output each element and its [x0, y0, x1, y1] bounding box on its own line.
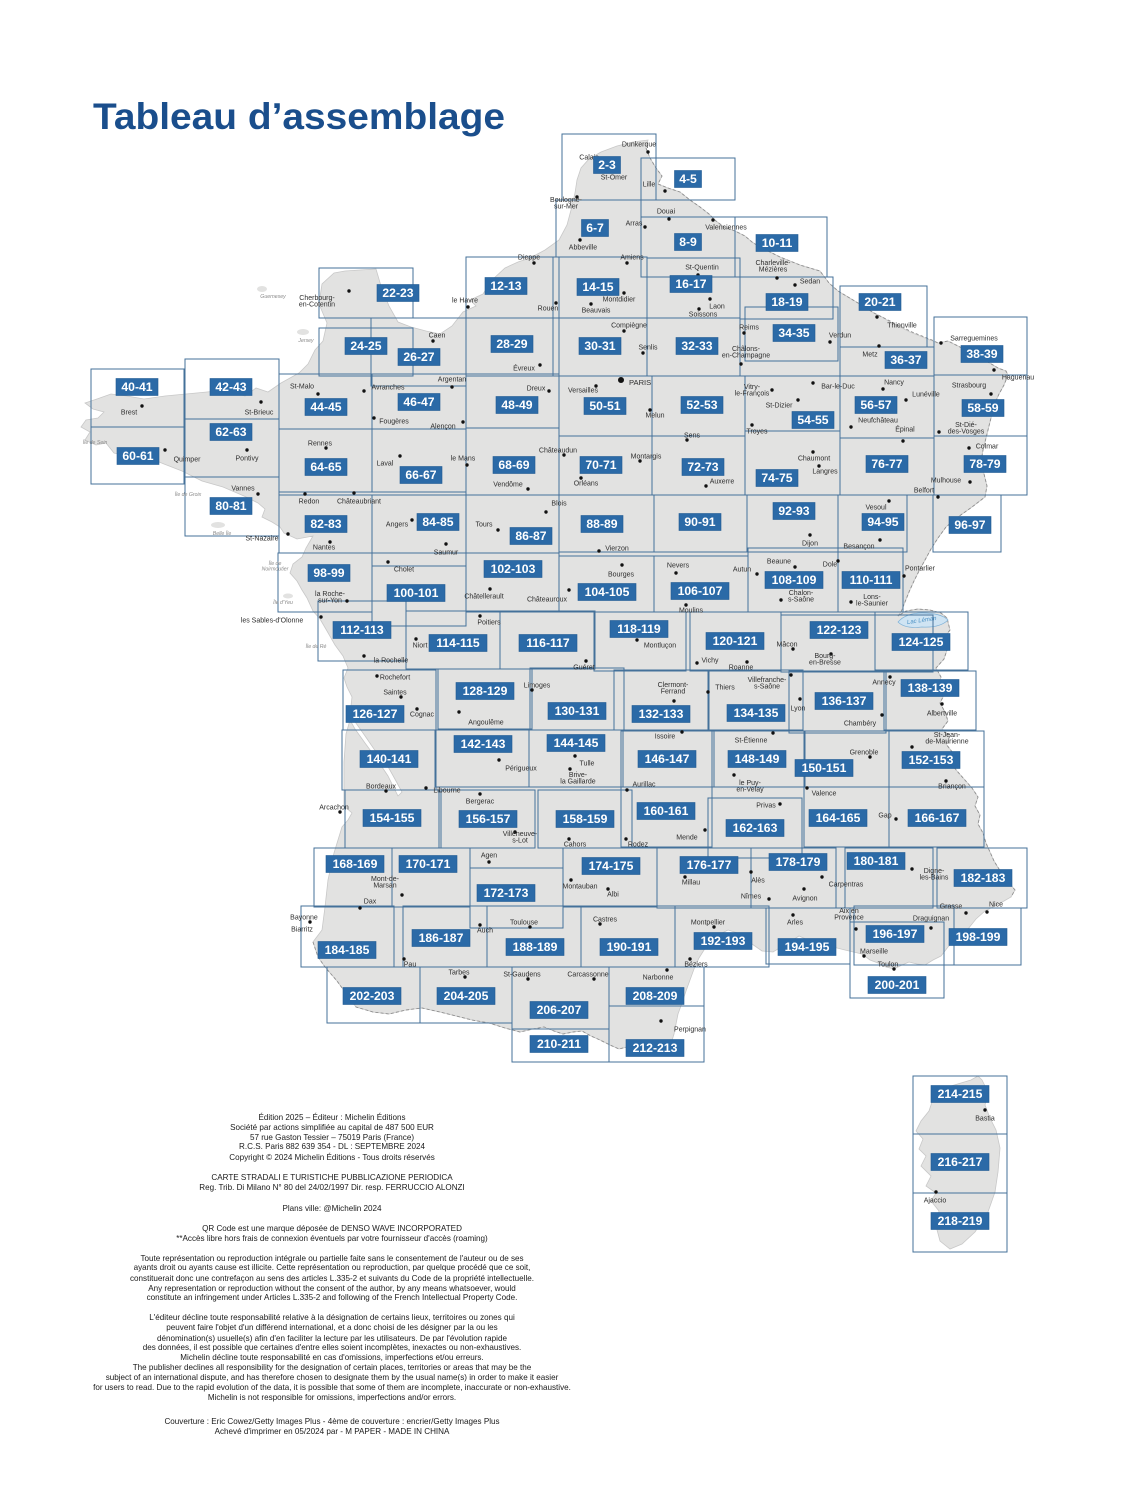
svg-text:Besançon: Besançon [843, 543, 874, 550]
svg-text:Cahors: Cahors [564, 841, 587, 848]
svg-text:Chaumont: Chaumont [798, 455, 830, 462]
svg-text:Niort: Niort [413, 642, 428, 649]
svg-text:130-131: 130-131 [555, 704, 600, 718]
svg-text:52-53: 52-53 [686, 398, 717, 412]
svg-text:Laon: Laon [709, 303, 725, 310]
svg-text:Cognac: Cognac [410, 711, 435, 718]
svg-text:Dieppe: Dieppe [518, 254, 540, 261]
svg-text:Langres: Langres [812, 468, 838, 475]
svg-text:Soissons: Soissons [689, 311, 718, 318]
svg-text:40-41: 40-41 [121, 380, 152, 394]
svg-text:Lyon: Lyon [791, 705, 806, 712]
svg-text:Île d'Yeu: Île d'Yeu [273, 599, 293, 606]
svg-text:158-159: 158-159 [563, 812, 608, 826]
svg-text:Laval: Laval [377, 460, 394, 467]
svg-text:Grasse: Grasse [940, 903, 963, 910]
svg-text:peuvent faire l'objet d'un dif: peuvent faire l'objet d'un différend int… [166, 1323, 497, 1332]
svg-text:88-89: 88-89 [586, 517, 617, 531]
svg-text:Valence: Valence [812, 790, 837, 797]
svg-text:Fougères: Fougères [379, 418, 409, 425]
svg-text:Auch: Auch [477, 927, 493, 934]
svg-text:18-19: 18-19 [771, 295, 802, 309]
svg-text:Montluçon: Montluçon [644, 642, 676, 649]
svg-text:Angers: Angers [386, 521, 409, 528]
svg-text:le Havre: le Havre [452, 297, 478, 304]
svg-text:Thionville: Thionville [887, 322, 917, 329]
svg-text:14-15: 14-15 [582, 280, 613, 294]
svg-text:en-Bresse: en-Bresse [809, 660, 841, 667]
svg-text:34-35: 34-35 [778, 326, 809, 340]
svg-text:172-173: 172-173 [484, 886, 529, 900]
svg-text:Caen: Caen [429, 332, 446, 339]
svg-text:Alès: Alès [751, 877, 765, 884]
svg-text:s-Saône: s-Saône [788, 597, 814, 604]
svg-text:Vendôme: Vendôme [493, 481, 523, 488]
svg-text:Tulle: Tulle [580, 760, 595, 767]
svg-text:Autun: Autun [733, 566, 751, 573]
svg-text:Pau: Pau [404, 961, 417, 968]
svg-text:de-Maurienne: de-Maurienne [925, 739, 968, 746]
svg-text:Bastia: Bastia [975, 1115, 995, 1122]
svg-text:214-215: 214-215 [938, 1087, 983, 1101]
svg-text:Privas: Privas [756, 802, 776, 809]
svg-text:Millau: Millau [682, 879, 700, 886]
svg-text:192-193: 192-193 [701, 934, 746, 948]
svg-text:Vichy: Vichy [702, 657, 719, 664]
svg-text:Dunkerque: Dunkerque [622, 141, 656, 148]
svg-text:96-97: 96-97 [954, 518, 985, 532]
svg-text:Tarbes: Tarbes [448, 969, 470, 976]
svg-text:Dax: Dax [364, 898, 377, 905]
svg-text:St-Étienne: St-Étienne [735, 735, 768, 744]
svg-text:Marsan: Marsan [373, 883, 396, 890]
svg-text:St-Nazaire: St-Nazaire [245, 535, 278, 542]
svg-text:124-125: 124-125 [899, 635, 944, 649]
svg-text:Valenciennes: Valenciennes [705, 224, 747, 231]
svg-text:Troyes: Troyes [746, 428, 768, 435]
svg-text:Aurillac: Aurillac [633, 781, 656, 788]
svg-text:136-137: 136-137 [822, 694, 867, 708]
svg-text:150-151: 150-151 [802, 761, 847, 775]
svg-text:70-71: 70-71 [585, 458, 616, 472]
svg-text:Bergerac: Bergerac [466, 798, 495, 805]
svg-text:Albertville: Albertville [927, 710, 957, 717]
svg-text:196-197: 196-197 [873, 927, 918, 941]
svg-text:Agen: Agen [481, 852, 497, 859]
svg-text:dénomination(s) usuelle(s) afi: dénomination(s) usuelle(s) afin d'en fac… [157, 1334, 507, 1343]
svg-text:184-185: 184-185 [325, 943, 370, 957]
svg-text:Argentan: Argentan [438, 376, 467, 383]
svg-text:152-153: 152-153 [909, 753, 954, 767]
svg-text:Dreux: Dreux [527, 385, 546, 392]
svg-text:178-179: 178-179 [776, 855, 821, 869]
svg-text:St-Omer: St-Omer [601, 174, 628, 181]
svg-text:Rodez: Rodez [628, 841, 649, 848]
svg-text:Bordeaux: Bordeaux [366, 783, 396, 790]
svg-text:Sedan: Sedan [800, 278, 820, 285]
svg-text:2-3: 2-3 [598, 158, 616, 172]
svg-text:54-55: 54-55 [797, 413, 828, 427]
svg-text:for users to read. Due to the: for users to read. Due to the rapid evol… [93, 1383, 571, 1392]
svg-text:Société par actions simplifiée: Société par actions simplifiée au capita… [230, 1123, 434, 1132]
svg-text:Angoulême: Angoulême [468, 719, 504, 726]
svg-text:84-85: 84-85 [422, 515, 453, 529]
svg-text:St-Gaudens: St-Gaudens [503, 971, 541, 978]
svg-text:32-33: 32-33 [681, 339, 712, 353]
svg-text:Any representation or reproduc: Any representation or reproduction witho… [148, 1284, 516, 1293]
svg-text:en-Velay: en-Velay [736, 787, 764, 794]
svg-text:Montpellier: Montpellier [691, 919, 726, 926]
svg-text:166-167: 166-167 [915, 811, 960, 825]
svg-text:Narbonne: Narbonne [643, 974, 674, 981]
svg-text:110-111: 110-111 [850, 573, 893, 587]
svg-text:Michelin is not responsible fo: Michelin is not responsible for omission… [208, 1393, 456, 1402]
svg-text:Thiers: Thiers [715, 684, 735, 691]
svg-text:CARTE STRADALI E TURISTICHE PU: CARTE STRADALI E TURISTICHE PUBBLICAZION… [211, 1173, 453, 1182]
svg-text:Perpignan: Perpignan [674, 1026, 706, 1033]
svg-text:200-201: 200-201 [875, 978, 920, 992]
svg-text:Mende: Mende [676, 834, 698, 841]
svg-text:St-Quentin: St-Quentin [685, 264, 719, 271]
svg-text:26-27: 26-27 [403, 350, 434, 364]
svg-text:Grenoble: Grenoble [850, 749, 879, 756]
svg-text:Arras: Arras [626, 220, 643, 227]
svg-text:Épinal: Épinal [895, 424, 915, 433]
svg-text:Issoire: Issoire [655, 733, 676, 740]
svg-text:R.C.S. Paris 882 639 354 - DL: R.C.S. Paris 882 639 354 - DL : SEPTEMBR… [239, 1142, 425, 1151]
svg-text:Arcachon: Arcachon [319, 804, 349, 811]
svg-text:Metz: Metz [862, 351, 878, 358]
svg-text:16-17: 16-17 [675, 277, 706, 291]
svg-text:Dijon: Dijon [802, 540, 818, 547]
svg-text:Amiens: Amiens [620, 254, 644, 261]
svg-text:202-203: 202-203 [350, 989, 395, 1003]
svg-text:168-169: 168-169 [333, 857, 378, 871]
svg-text:48-49: 48-49 [501, 398, 532, 412]
svg-text:56-57: 56-57 [860, 398, 891, 412]
svg-text:94-95: 94-95 [867, 515, 898, 529]
svg-text:60-61: 60-61 [122, 449, 153, 463]
svg-text:Senlis: Senlis [638, 344, 658, 351]
svg-text:20-21: 20-21 [864, 295, 895, 309]
svg-text:Montdidier: Montdidier [603, 296, 636, 303]
svg-text:Vierzon: Vierzon [605, 545, 629, 552]
svg-text:en-Champagne: en-Champagne [722, 353, 770, 360]
svg-text:74-75: 74-75 [761, 471, 792, 485]
svg-text:Tours: Tours [475, 521, 493, 528]
svg-text:Mézières: Mézières [759, 267, 788, 274]
svg-text:57 rue Gaston Tessier – 75019: 57 rue Gaston Tessier – 75019 Paris (Fra… [250, 1133, 414, 1142]
svg-text:subject of an international di: subject of an international dispute, and… [106, 1373, 559, 1382]
svg-text:182-183: 182-183 [961, 871, 1006, 885]
svg-text:188-189: 188-189 [513, 940, 558, 954]
svg-text:Michelin décline toute respons: Michelin décline toute responsabilité en… [180, 1353, 483, 1362]
svg-text:162-163: 162-163 [733, 821, 778, 835]
svg-text:170-171: 170-171 [406, 857, 451, 871]
svg-text:194-195: 194-195 [785, 940, 830, 954]
svg-text:Toute représentation ou reprod: Toute représentation ou reproduction int… [140, 1254, 523, 1263]
svg-text:ayants droit ou ayants cause e: ayants droit ou ayants cause est illicit… [134, 1263, 531, 1272]
svg-text:126-127: 126-127 [353, 707, 398, 721]
svg-text:Reims: Reims [739, 324, 759, 331]
svg-text:108-109: 108-109 [772, 573, 817, 587]
svg-text:30-31: 30-31 [584, 339, 615, 353]
svg-text:L'éditeur décline toute respon: L'éditeur décline toute responsabilité r… [149, 1313, 515, 1322]
svg-text:118-119: 118-119 [617, 622, 661, 636]
svg-text:St-Brieuc: St-Brieuc [245, 409, 274, 416]
svg-text:Guernesey: Guernesey [260, 294, 286, 300]
svg-text:82-83: 82-83 [310, 517, 341, 531]
svg-text:sur-Mer: sur-Mer [554, 204, 579, 211]
svg-text:154-155: 154-155 [370, 811, 415, 825]
svg-text:216-217: 216-217 [938, 1155, 983, 1169]
svg-text:Versailles: Versailles [568, 387, 598, 394]
svg-text:Lunéville: Lunéville [912, 391, 940, 398]
svg-text:en-Cotentin: en-Cotentin [299, 302, 335, 309]
svg-text:140-141: 140-141 [367, 752, 412, 766]
svg-text:Provence: Provence [834, 915, 864, 922]
svg-text:Douai: Douai [657, 208, 676, 215]
svg-text:Toulon: Toulon [878, 961, 899, 968]
svg-text:Pontarlier: Pontarlier [905, 565, 936, 572]
svg-text:Gap: Gap [878, 812, 891, 819]
svg-text:180-181: 180-181 [854, 854, 899, 868]
svg-text:64-65: 64-65 [310, 460, 341, 474]
svg-text:Brest: Brest [121, 409, 137, 416]
svg-text:186-187: 186-187 [419, 931, 464, 945]
svg-text:Île de Groix: Île de Groix [175, 491, 202, 498]
svg-text:St-Malo: St-Malo [290, 383, 314, 390]
svg-text:constitute an infringement und: constitute an infringement under Article… [147, 1293, 518, 1302]
svg-text:86-87: 86-87 [515, 529, 546, 543]
svg-text:120-121: 120-121 [713, 634, 758, 648]
svg-text:122-123: 122-123 [817, 623, 862, 637]
svg-text:204-205: 204-205 [444, 989, 489, 1003]
svg-text:Ferrand: Ferrand [661, 689, 686, 696]
svg-text:38-39: 38-39 [966, 347, 997, 361]
svg-text:Melun: Melun [645, 412, 664, 419]
svg-text:Albi: Albi [607, 891, 619, 898]
svg-text:Sarreguemines: Sarreguemines [950, 335, 998, 342]
svg-text:The publisher declines all res: The publisher declines all responsibilit… [133, 1363, 532, 1372]
svg-text:Guéret: Guéret [573, 664, 594, 671]
svg-text:176-177: 176-177 [687, 858, 732, 872]
svg-text:46-47: 46-47 [403, 395, 434, 409]
svg-text:Saintes: Saintes [383, 689, 407, 696]
svg-text:Périgueux: Périgueux [505, 765, 537, 772]
svg-text:QR Code est une marque déposée: QR Code est une marque déposée de DENSO … [202, 1224, 462, 1233]
svg-text:Bar-le-Duc: Bar-le-Duc [821, 383, 855, 390]
svg-text:104-105: 104-105 [585, 585, 630, 599]
svg-text:42-43: 42-43 [215, 380, 246, 394]
svg-text:Redon: Redon [299, 498, 320, 505]
svg-text:Rouen: Rouen [538, 305, 559, 312]
svg-text:66-67: 66-67 [405, 468, 436, 482]
svg-text:Libourne: Libourne [433, 787, 460, 794]
svg-text:138-139: 138-139 [908, 681, 953, 695]
svg-text:68-69: 68-69 [498, 458, 529, 472]
svg-text:le-François: le-François [735, 391, 770, 398]
svg-text:Lille: Lille [643, 181, 656, 188]
svg-text:Couverture : Eric Cowez/Getty: Couverture : Eric Cowez/Getty Images Plu… [164, 1417, 499, 1426]
svg-text:72-73: 72-73 [687, 460, 718, 474]
svg-text:Sens: Sens [684, 432, 700, 439]
svg-text:les-Bains: les-Bains [920, 875, 949, 882]
svg-text:Rochefort: Rochefort [380, 674, 410, 681]
svg-text:Saumur: Saumur [434, 549, 459, 556]
svg-text:Castres: Castres [593, 916, 618, 923]
svg-text:des données, il est possible q: des données, il est possible que certain… [143, 1343, 522, 1352]
svg-text:44-45: 44-45 [310, 400, 341, 414]
svg-text:116-117: 116-117 [526, 636, 570, 650]
svg-text:206-207: 206-207 [537, 1003, 582, 1017]
svg-text:Carpentras: Carpentras [829, 881, 864, 888]
svg-text:Reg. Trib. Di Milano N° 80 del: Reg. Trib. Di Milano N° 80 del 24/02/199… [199, 1183, 464, 1192]
svg-text:Copyright © 2024 Michelin Édit: Copyright © 2024 Michelin Éditions - Tou… [229, 1153, 435, 1162]
svg-text:**Accès libre hors frais de co: **Accès libre hors frais de connexion év… [176, 1234, 488, 1243]
svg-text:Pontivy: Pontivy [236, 455, 259, 462]
svg-text:Nevers: Nevers [667, 562, 690, 569]
svg-text:98-99: 98-99 [313, 566, 344, 580]
svg-text:100-101: 100-101 [394, 586, 439, 600]
svg-text:28-29: 28-29 [496, 337, 527, 351]
svg-text:164-165: 164-165 [816, 811, 861, 825]
svg-text:Quimper: Quimper [174, 456, 202, 463]
svg-text:Toulouse: Toulouse [510, 919, 538, 926]
svg-text:Abbeville: Abbeville [569, 244, 598, 251]
svg-text:Châtellerault: Châtellerault [464, 593, 503, 600]
svg-text:76-77: 76-77 [871, 457, 902, 471]
svg-text:Chambéry: Chambéry [844, 720, 877, 727]
svg-text:58-59: 58-59 [967, 401, 998, 415]
svg-text:198-199: 198-199 [956, 930, 1001, 944]
svg-text:Vesoul: Vesoul [865, 504, 886, 511]
svg-text:Arles: Arles [787, 919, 803, 926]
svg-text:156-157: 156-157 [466, 812, 511, 826]
svg-text:210-211: 210-211 [537, 1037, 581, 1051]
svg-text:134-135: 134-135 [734, 706, 779, 720]
svg-text:174-175: 174-175 [589, 859, 634, 873]
svg-text:160-161: 160-161 [644, 804, 689, 818]
svg-text:Montauban: Montauban [562, 883, 597, 890]
svg-text:Nice: Nice [989, 901, 1003, 908]
svg-text:Noirmoutier: Noirmoutier [262, 566, 289, 572]
svg-text:36-37: 36-37 [890, 353, 921, 367]
svg-text:190-191: 190-191 [607, 940, 652, 954]
svg-text:102-103: 102-103 [491, 562, 536, 576]
svg-text:218-219: 218-219 [938, 1214, 983, 1228]
svg-text:sur-Yon: sur-Yon [318, 598, 342, 605]
svg-text:Vannes: Vannes [231, 485, 255, 492]
svg-text:144-145: 144-145 [554, 736, 599, 750]
svg-text:Île de Ré: Île de Ré [306, 643, 327, 650]
svg-text:92-93: 92-93 [778, 504, 809, 518]
svg-text:90-91: 90-91 [684, 515, 715, 529]
svg-text:Carcassonne: Carcassonne [567, 971, 608, 978]
svg-text:la Rochelle: la Rochelle [374, 657, 409, 664]
svg-text:Dole: Dole [823, 561, 838, 568]
svg-text:PARIS: PARIS [629, 378, 651, 387]
svg-text:128-129: 128-129 [463, 684, 508, 698]
svg-text:24-25: 24-25 [350, 339, 381, 353]
svg-text:148-149: 148-149 [735, 752, 780, 766]
svg-text:Rennes: Rennes [308, 440, 333, 447]
svg-text:Île de Sein: Île de Sein [83, 439, 108, 446]
svg-text:208-209: 208-209 [633, 989, 678, 1003]
svg-text:Ajaccio: Ajaccio [924, 1197, 947, 1204]
svg-text:Marseille: Marseille [860, 948, 888, 955]
svg-text:Montargis: Montargis [631, 453, 662, 460]
svg-text:6-7: 6-7 [586, 221, 604, 235]
svg-text:le-Saunier: le-Saunier [856, 601, 889, 608]
svg-text:Belle Île: Belle Île [213, 530, 232, 537]
svg-text:Colmar: Colmar [976, 443, 999, 450]
svg-text:Poitiers: Poitiers [477, 619, 501, 626]
svg-text:Belfort: Belfort [914, 487, 934, 494]
svg-text:Neufchâteau: Neufchâteau [858, 417, 898, 424]
svg-text:Châteaudun: Châteaudun [539, 447, 577, 454]
svg-text:Auxerre: Auxerre [710, 478, 735, 485]
svg-text:constituerait donc une contref: constituerait donc une contrefaçon au se… [130, 1274, 534, 1283]
svg-text:Alençon: Alençon [430, 423, 455, 430]
svg-text:Évreux: Évreux [513, 363, 535, 372]
svg-text:Annecy: Annecy [872, 679, 896, 686]
svg-text:Jersey: Jersey [297, 338, 314, 344]
svg-text:10-11: 10-11 [762, 236, 793, 250]
svg-text:Plans ville: @Michelin 2024: Plans ville: @Michelin 2024 [282, 1204, 382, 1213]
svg-text:50-51: 50-51 [589, 399, 620, 413]
svg-text:Verdun: Verdun [829, 332, 851, 339]
svg-text:114-115: 114-115 [436, 636, 480, 650]
svg-text:Bayonne: Bayonne [290, 914, 318, 921]
svg-text:Draguignan: Draguignan [913, 915, 949, 922]
svg-text:Orléans: Orléans [574, 480, 599, 487]
svg-text:Mulhouse: Mulhouse [931, 477, 961, 484]
svg-text:106-107: 106-107 [678, 584, 723, 598]
svg-text:Strasbourg: Strasbourg [952, 382, 986, 389]
svg-text:St-Dizier: St-Dizier [766, 402, 794, 409]
svg-text:des-Vosges: des-Vosges [948, 429, 985, 436]
svg-text:Achevé d'imprimer en 05/2024 p: Achevé d'imprimer en 05/2024 par - M PAP… [215, 1427, 450, 1436]
svg-text:Béziers: Béziers [684, 961, 708, 968]
svg-text:Édition 2025 – Éditeur : Miche: Édition 2025 – Éditeur : Michelin Éditio… [258, 1113, 405, 1122]
svg-text:112-113: 112-113 [340, 623, 384, 637]
svg-text:80-81: 80-81 [215, 499, 246, 513]
svg-text:Compiègne: Compiègne [611, 322, 647, 329]
svg-text:Nancy: Nancy [884, 379, 904, 386]
svg-text:Mâcon: Mâcon [776, 641, 797, 648]
svg-text:22-23: 22-23 [382, 286, 413, 300]
svg-text:Biarritz: Biarritz [291, 926, 313, 933]
svg-text:Limoges: Limoges [524, 682, 551, 689]
svg-text:s-Lot: s-Lot [512, 838, 528, 845]
svg-text:les Sables-d'Olonne: les Sables-d'Olonne [241, 617, 304, 624]
svg-text:62-63: 62-63 [215, 425, 246, 439]
svg-text:Roanne: Roanne [729, 664, 754, 671]
svg-text:4-5: 4-5 [679, 172, 697, 186]
svg-text:8-9: 8-9 [679, 235, 697, 249]
svg-text:212-213: 212-213 [633, 1041, 678, 1055]
svg-text:Haguenau: Haguenau [1002, 374, 1034, 381]
svg-text:146-147: 146-147 [645, 752, 690, 766]
svg-text:la Gaillarde: la Gaillarde [560, 779, 596, 786]
svg-text:Bourges: Bourges [608, 571, 635, 578]
svg-text:Moulins: Moulins [679, 607, 704, 614]
svg-text:142-143: 142-143 [461, 737, 506, 751]
svg-text:Beauvais: Beauvais [582, 307, 611, 314]
svg-text:Châteaubriant: Châteaubriant [337, 498, 381, 505]
svg-text:Nantes: Nantes [313, 544, 336, 551]
